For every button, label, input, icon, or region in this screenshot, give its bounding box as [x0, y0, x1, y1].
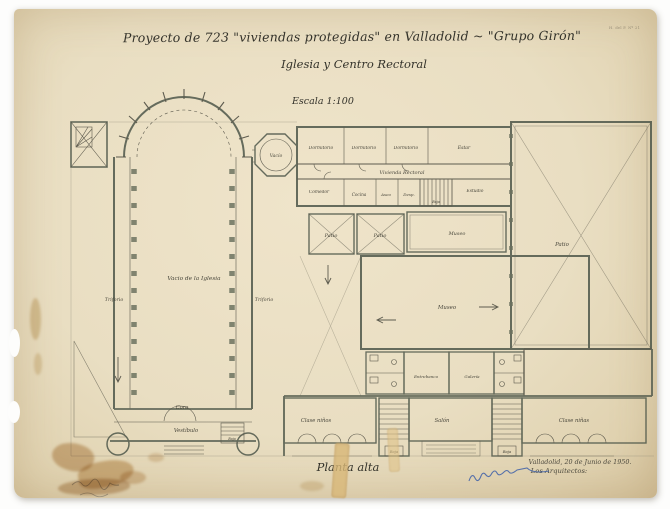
- room-label: Baja: [389, 449, 399, 454]
- scan-background: Proyecto de 723 "viviendas protegidas" e…: [0, 0, 670, 509]
- floor-plan-svg: VacíoDormitorioDormitorioDormitorioEstar…: [14, 9, 670, 509]
- room-label: Salón: [435, 417, 450, 424]
- room-labels: VacíoDormitorioDormitorioDormitorioEstar…: [105, 145, 590, 454]
- room-label: Vestíbulo: [174, 427, 198, 434]
- pencil-note: [72, 479, 119, 497]
- room-label: Museo: [448, 231, 466, 237]
- room-label: Dormitorio: [308, 146, 334, 151]
- room-label: Baja: [431, 200, 440, 204]
- room-label: Estudio: [466, 189, 484, 194]
- room-label: Comedor: [309, 190, 330, 195]
- room-label: Galería: [464, 374, 480, 379]
- room-label: Vacio de la Iglesia: [167, 276, 221, 282]
- room-label: Vacío: [270, 152, 283, 159]
- room-label: Dormitorio: [351, 146, 377, 151]
- room-label: Baja: [502, 449, 512, 454]
- room-label: Clase niñas: [559, 417, 590, 424]
- room-label: Aseo: [380, 192, 391, 197]
- room-label: Triforio: [105, 297, 124, 303]
- room-label: Patio: [373, 233, 387, 239]
- room-label: Coro: [176, 405, 189, 411]
- room-label: Clase niños: [301, 417, 332, 424]
- room-label: Desp.: [402, 192, 414, 197]
- paper-sheet: Proyecto de 723 "viviendas protegidas" e…: [14, 9, 657, 498]
- room-label: Cocina: [352, 192, 367, 197]
- room-label: Patio: [554, 242, 569, 248]
- room-label: Triforio: [255, 297, 274, 303]
- room-label: Entrebanco: [413, 374, 439, 379]
- architect-signature: [469, 468, 549, 481]
- room-label: Vivienda Rectoral: [379, 170, 424, 176]
- room-label: Museo: [437, 305, 457, 311]
- room-label: Estar: [457, 145, 471, 151]
- room-label: Baja: [227, 437, 236, 441]
- room-label: Dormitorio: [393, 146, 419, 151]
- room-label: Patio: [324, 233, 338, 239]
